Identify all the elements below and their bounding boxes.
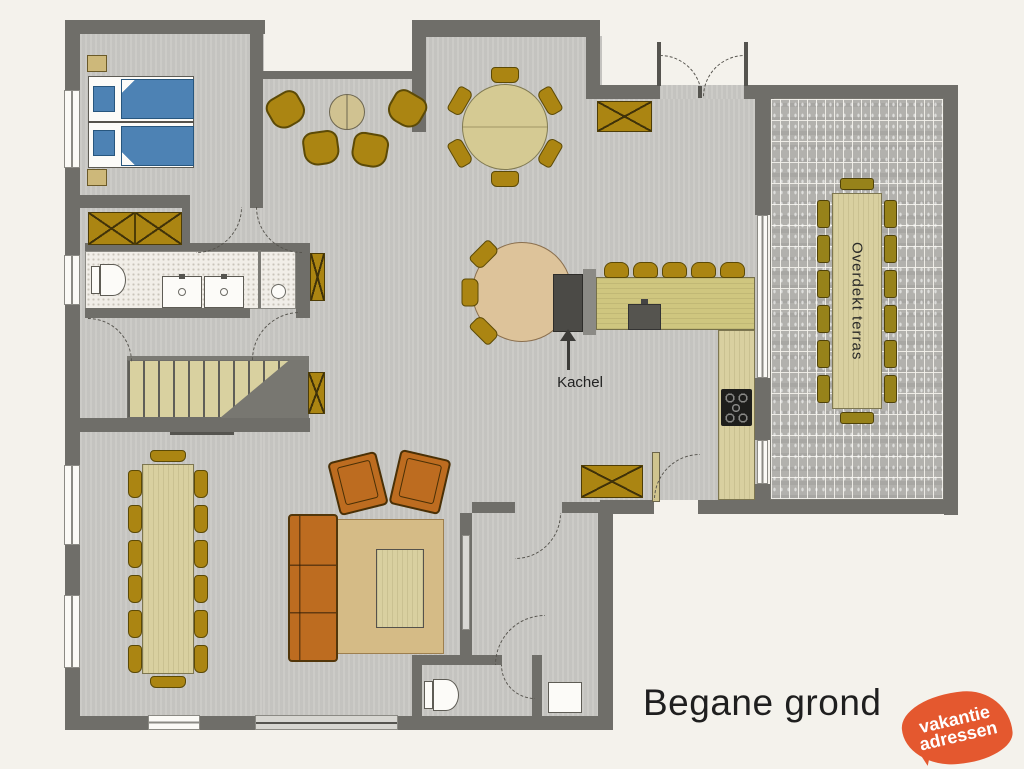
bar-sink [628,304,661,330]
kachel-arrow-line [567,340,570,370]
terrace-chair [817,375,830,403]
toilet-tank [91,266,100,294]
dining-table-long [142,464,194,674]
wall [80,195,188,208]
chair [194,505,208,533]
wall [944,85,958,515]
terrace-chair [840,178,874,190]
wall [758,85,958,98]
bed-duvet [121,79,194,119]
terrace-chair [884,235,897,263]
interior-glass-panel [462,535,470,630]
bed-duvet [121,126,194,166]
sliding-door [255,715,398,730]
terrace-chair [884,375,897,403]
bed-pillow [93,130,115,156]
terrace-chair [884,270,897,298]
chair [128,645,142,673]
floor-drain [271,284,286,299]
window [757,215,768,378]
toilet-bowl [100,264,126,296]
wardrobe-closet [135,212,182,245]
terrace-chair [817,340,830,368]
kitchen-bar-counter [596,277,755,330]
round-dining-table [462,84,548,170]
wardrobe-closet [597,101,652,132]
terrace-chair [817,305,830,333]
window [64,465,80,545]
bar-stool [604,262,629,278]
wall [182,195,190,245]
window [64,595,80,668]
terrace-chair [817,235,830,263]
wardrobe-closet [310,253,325,301]
wardrobe-closet [88,212,135,245]
toilet-bowl [433,679,459,711]
terrace-chair [817,200,830,228]
bar-sink-tap [641,299,648,304]
kachel-label: Kachel [540,374,620,391]
terrace-chair [840,412,874,424]
terrace-label: Overdekt terras [849,242,866,360]
wall [85,308,250,318]
kachel-stove [553,274,583,332]
sink-faucet [221,274,227,279]
terrace-chair [884,305,897,333]
hall-basin [548,682,582,713]
wall [263,71,413,79]
sink-drain [220,288,228,296]
wall [412,655,502,665]
wall [600,500,654,514]
bar-stool [691,262,716,278]
bed-pillow [93,86,115,112]
window [148,715,200,730]
wall [472,502,515,513]
chair [150,450,186,462]
chair [128,540,142,568]
wall [755,98,770,215]
cooktop-stove [721,389,752,426]
armchair-seat [337,459,379,505]
chair [491,171,519,187]
wall [698,500,958,514]
page-title: Begane grond [643,682,923,724]
window [64,255,80,305]
terrace-chair [884,340,897,368]
wall [562,502,600,513]
chair [128,575,142,603]
bar-stool [633,262,658,278]
wall [755,378,770,440]
bar-stool [720,262,745,278]
chair [150,676,186,688]
nightstand [87,55,107,72]
wall [412,20,600,37]
sink-drain [178,288,186,296]
wall [258,250,261,308]
floor-plan: Kachel Overdekt terras [0,0,1024,768]
sink-faucet [179,274,185,279]
wall [598,85,660,99]
lounge-coffee-table [329,94,365,130]
armchair-seat [398,457,442,504]
wall [65,20,265,34]
terrace-table: Overdekt terras [832,193,882,409]
wall [250,33,263,208]
bar-stool [662,262,687,278]
chair [128,505,142,533]
logo-text: vakantie adressen [915,702,1000,753]
chair [194,645,208,673]
wall [296,243,310,318]
wall [598,513,613,730]
chair [194,610,208,638]
toilet-tank [424,681,433,709]
chair [128,470,142,498]
chair [194,575,208,603]
wall [755,484,770,502]
chair [194,470,208,498]
window [757,440,768,484]
chair [194,540,208,568]
nightstand [87,169,107,186]
kachel-arrow-head [560,329,576,341]
terrace-chair [817,270,830,298]
bed-divider [88,121,194,123]
sofa [288,514,338,662]
wardrobe-closet [308,372,325,414]
chair [462,279,479,307]
staircase-handrail [170,432,234,435]
terrace-chair [884,200,897,228]
chair [128,610,142,638]
window [64,90,80,168]
coffee-table [376,549,424,628]
wall [412,655,422,716]
chair [491,67,519,83]
kachel-stove-cap [583,269,596,335]
wardrobe-closet [581,465,643,498]
wall [80,418,310,432]
